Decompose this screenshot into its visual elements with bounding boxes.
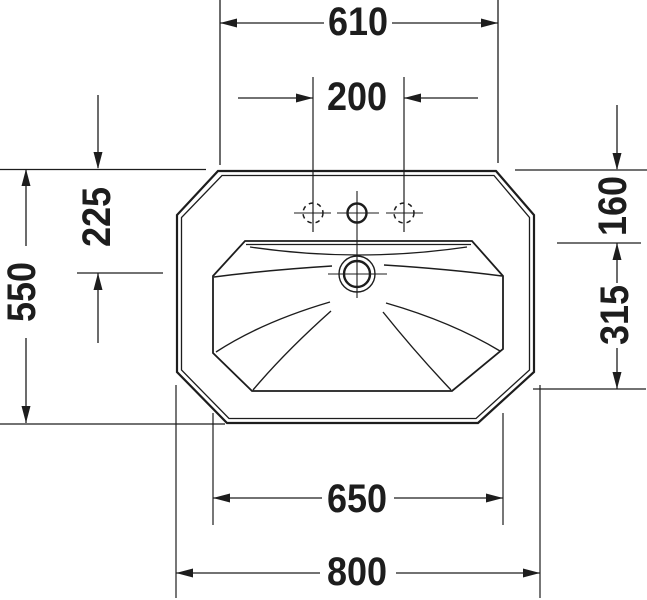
dim-label-bowl-width: 650 (327, 479, 387, 519)
dim-label-rim-to-overflow: 225 (77, 187, 117, 247)
dim-label-overall-width: 800 (327, 552, 387, 592)
dim-label-tap-hole-spacing: 200 (327, 77, 387, 117)
dim-label-bowl-depth: 315 (595, 285, 635, 345)
dim-label-top-width: 610 (328, 2, 388, 42)
dim-label-overall-depth: 550 (2, 262, 42, 322)
washbasin-top-view-drawing (0, 0, 647, 600)
overflow-hole (328, 256, 387, 292)
basin-bowl (213, 241, 503, 391)
technical-drawing-canvas: 610 200 225 550 160 315 650 800 (0, 0, 647, 600)
basin-outer-rim (177, 171, 534, 423)
dim-label-rim-to-bowl-front: 160 (593, 176, 633, 236)
